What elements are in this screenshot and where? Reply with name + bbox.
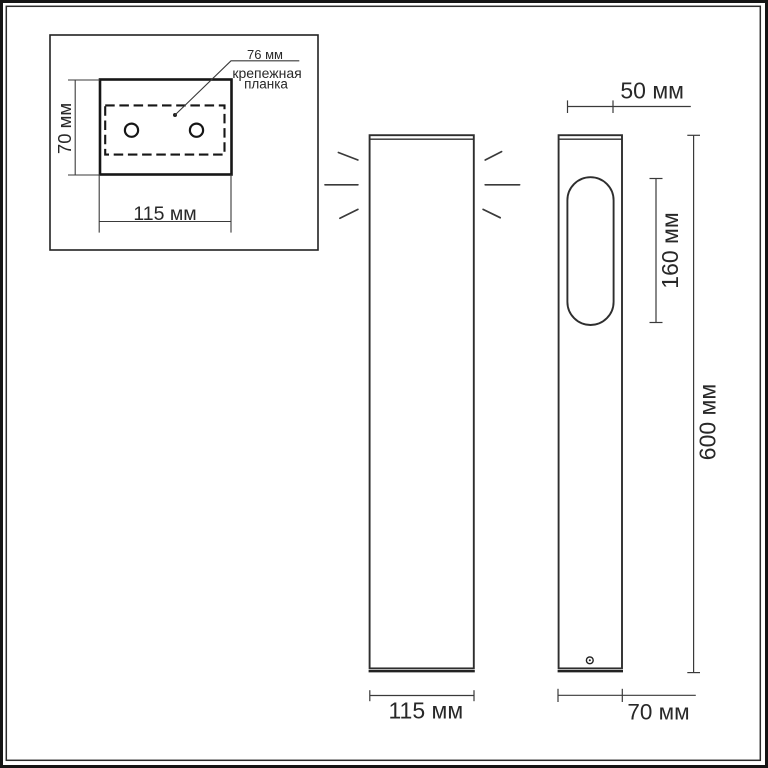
svg-text:70 мм: 70 мм — [54, 103, 75, 154]
svg-text:115 мм: 115 мм — [388, 698, 463, 724]
svg-text:600 мм: 600 мм — [695, 384, 721, 460]
svg-text:планка: планка — [244, 77, 288, 92]
svg-text:160 мм: 160 мм — [657, 212, 683, 288]
svg-text:115 мм: 115 мм — [133, 203, 196, 225]
svg-text:70 мм: 70 мм — [627, 700, 689, 725]
svg-text:50 мм: 50 мм — [620, 78, 684, 104]
svg-text:76 мм: 76 мм — [247, 47, 283, 62]
